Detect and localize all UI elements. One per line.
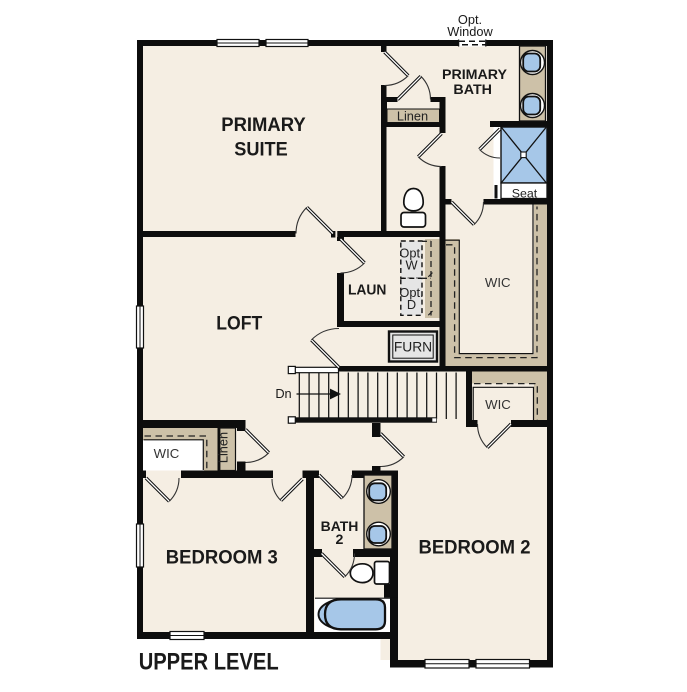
svg-text:SUITE: SUITE	[234, 139, 288, 161]
svg-text:Linen: Linen	[397, 108, 428, 123]
svg-text:W: W	[405, 258, 418, 273]
svg-text:2: 2	[336, 532, 344, 548]
svg-text:UPPER LEVEL: UPPER LEVEL	[139, 648, 279, 675]
svg-text:WIC: WIC	[154, 446, 180, 461]
svg-text:BEDROOM 3: BEDROOM 3	[166, 546, 278, 568]
svg-text:BEDROOM 2: BEDROOM 2	[419, 537, 531, 559]
svg-text:PRIMARY: PRIMARY	[221, 114, 306, 136]
svg-text:Seat: Seat	[512, 186, 538, 200]
svg-text:LAUN: LAUN	[348, 282, 387, 298]
svg-text:BATH: BATH	[453, 82, 492, 98]
svg-text:FURN: FURN	[394, 340, 432, 355]
svg-text:LOFT: LOFT	[216, 314, 262, 335]
svg-text:Window: Window	[447, 24, 493, 39]
svg-text:Linen: Linen	[215, 432, 230, 463]
svg-text:D: D	[407, 297, 416, 312]
svg-text:WIC: WIC	[485, 275, 511, 290]
svg-text:Dn: Dn	[275, 386, 291, 401]
svg-text:WIC: WIC	[485, 397, 511, 412]
svg-text:PRIMARY: PRIMARY	[442, 67, 508, 83]
